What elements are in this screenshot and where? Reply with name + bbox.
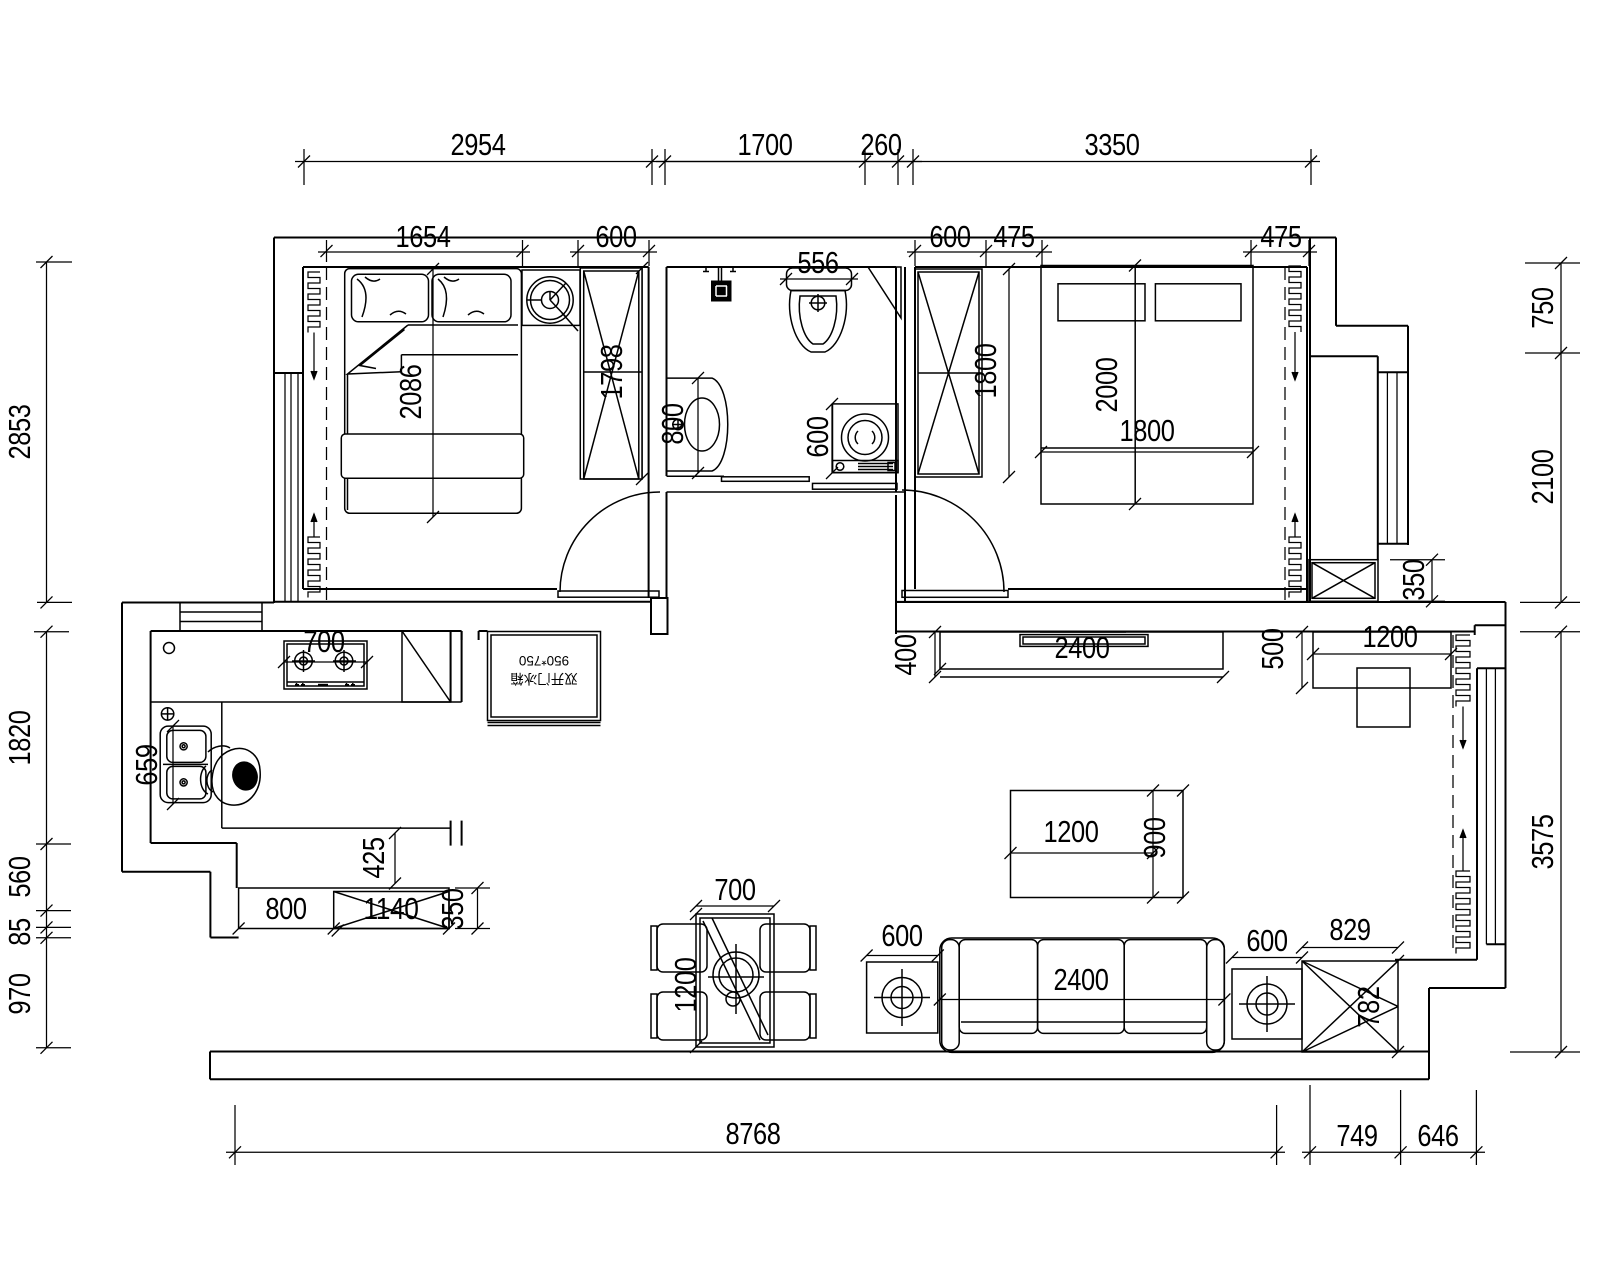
svg-text:600: 600: [800, 416, 835, 457]
svg-text:556: 556: [797, 245, 838, 280]
svg-text:560: 560: [2, 856, 37, 897]
svg-text:260: 260: [860, 127, 901, 162]
svg-text:2400: 2400: [1055, 630, 1110, 665]
svg-text:475: 475: [1260, 219, 1301, 254]
svg-text:700: 700: [714, 872, 755, 907]
svg-text:350: 350: [435, 888, 470, 929]
svg-text:700: 700: [303, 624, 344, 659]
svg-text:8768: 8768: [726, 1116, 781, 1151]
svg-text:829: 829: [1329, 912, 1370, 947]
svg-text:1800: 1800: [968, 343, 1003, 398]
svg-text:900: 900: [1137, 817, 1172, 858]
svg-text:659: 659: [129, 744, 164, 785]
svg-text:2100: 2100: [1525, 449, 1560, 504]
svg-text:3575: 3575: [1525, 815, 1560, 870]
svg-text:1798: 1798: [594, 345, 629, 400]
svg-text:646: 646: [1417, 1118, 1458, 1153]
svg-text:425: 425: [356, 837, 391, 878]
svg-text:1200: 1200: [1363, 619, 1418, 654]
svg-text:2853: 2853: [2, 405, 37, 460]
svg-text:600: 600: [595, 219, 636, 254]
svg-text:782: 782: [1351, 986, 1386, 1027]
svg-text:750: 750: [1525, 287, 1560, 328]
svg-text:1200: 1200: [668, 957, 703, 1012]
svg-text:1140: 1140: [364, 891, 419, 926]
svg-text:1654: 1654: [396, 219, 451, 254]
svg-text:2954: 2954: [451, 127, 506, 162]
svg-text:2086: 2086: [393, 365, 428, 420]
svg-text:双开门冰箱: 双开门冰箱: [510, 671, 578, 686]
svg-text:2400: 2400: [1054, 962, 1109, 997]
svg-text:950*750: 950*750: [519, 653, 569, 668]
svg-text:600: 600: [881, 918, 922, 953]
svg-text:3350: 3350: [1085, 127, 1140, 162]
svg-text:800: 800: [655, 403, 690, 444]
svg-text:400: 400: [888, 634, 923, 675]
svg-text:970: 970: [2, 973, 37, 1014]
svg-text:749: 749: [1336, 1118, 1377, 1153]
svg-text:2000: 2000: [1089, 357, 1124, 412]
svg-text:600: 600: [1246, 923, 1287, 958]
svg-text:1800: 1800: [1120, 413, 1175, 448]
svg-text:350: 350: [1396, 559, 1431, 600]
svg-text:1820: 1820: [2, 710, 37, 765]
svg-text:800: 800: [265, 891, 306, 926]
svg-text:600: 600: [929, 219, 970, 254]
svg-text:1200: 1200: [1044, 814, 1099, 849]
svg-text:85: 85: [2, 918, 37, 946]
svg-text:475: 475: [993, 219, 1034, 254]
svg-text:500: 500: [1255, 628, 1290, 669]
svg-text:1700: 1700: [738, 127, 793, 162]
